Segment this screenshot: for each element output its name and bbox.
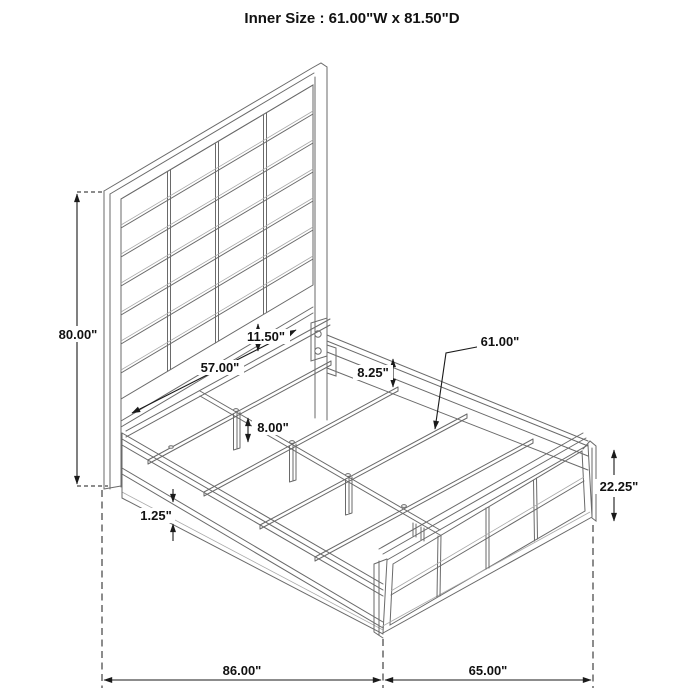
slats	[148, 361, 533, 561]
dim-label-rail-trim: 1.25"	[140, 508, 171, 523]
dim-overall-width: 65.00"	[385, 663, 591, 680]
dim-label-overall-height: 80.00"	[59, 327, 98, 342]
dim-rail-trim: 1.25"	[135, 489, 175, 541]
diagram-title: Inner Size : 61.00"W x 81.50"D	[244, 10, 459, 27]
dim-label-support-leg-height: 8.00"	[257, 420, 288, 435]
dim-label-headboard-slat-span: 57.00"	[201, 360, 240, 375]
dim-support-leg-height: 8.00"	[248, 418, 294, 442]
bed-dimension-diagram: 80.00" 57.00" 11.50" 8.25" 61.00" 8.00" …	[0, 0, 700, 700]
dim-label-headboard-rail-height: 11.50"	[247, 329, 285, 344]
side-rail-far	[327, 335, 588, 470]
dim-label-overall-width: 65.00"	[469, 663, 508, 678]
dim-label-inner-width: 61.00"	[481, 334, 520, 349]
dim-side-rail-height: 8.25"	[353, 359, 393, 387]
dim-overall-height: 80.00"	[54, 192, 108, 486]
dim-headboard-rail-height: 11.50"	[243, 324, 290, 351]
dim-label-side-rail-height: 8.25"	[357, 365, 388, 380]
dim-overall-depth: 86.00"	[104, 663, 381, 680]
footboard	[374, 433, 596, 638]
dim-footboard-height: 22.25"	[595, 450, 643, 521]
dim-label-overall-depth: 86.00"	[223, 663, 262, 678]
diagram-canvas: 80.00" 57.00" 11.50" 8.25" 61.00" 8.00" …	[0, 0, 700, 700]
dim-label-footboard-height: 22.25"	[600, 479, 639, 494]
